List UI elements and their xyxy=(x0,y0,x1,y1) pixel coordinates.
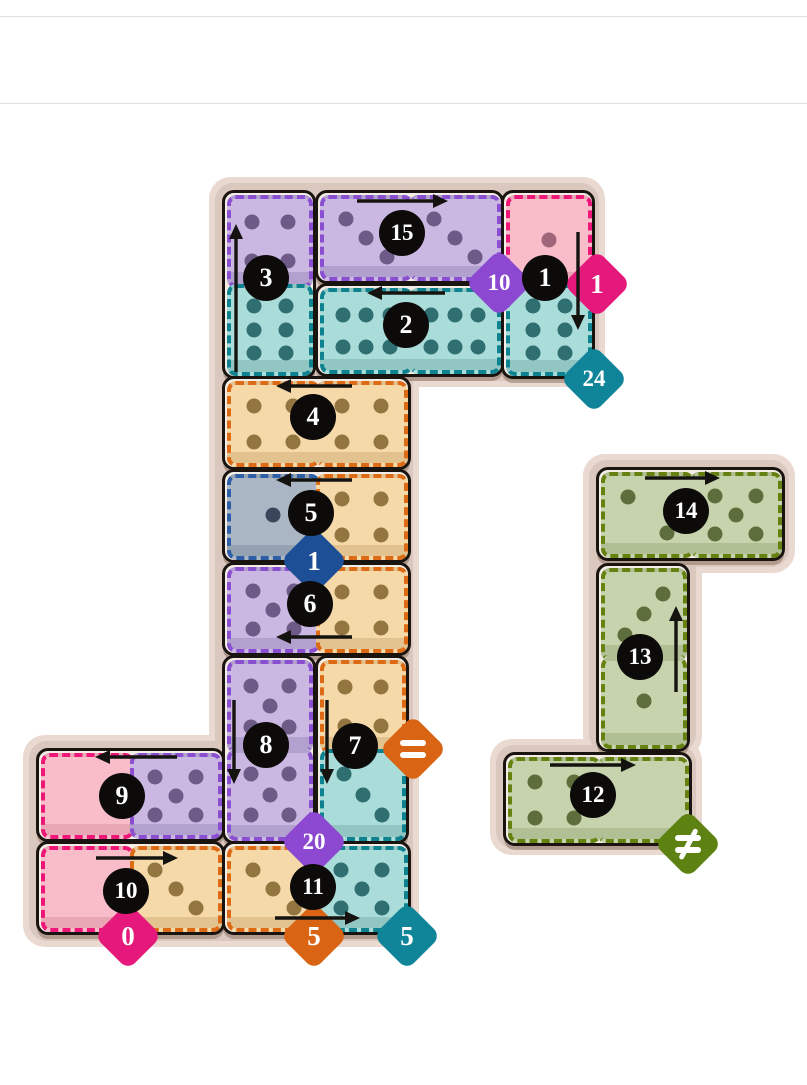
target-badge-neq xyxy=(654,810,722,878)
arrow-right-icon xyxy=(96,849,178,867)
pip xyxy=(266,882,281,897)
equals-bar xyxy=(400,752,426,758)
arrow-down-icon xyxy=(225,700,243,784)
pip xyxy=(337,767,352,782)
pip xyxy=(527,810,542,825)
move-number: 6 xyxy=(287,581,333,627)
pip xyxy=(168,882,183,897)
pip xyxy=(447,339,462,354)
pip xyxy=(245,863,260,878)
arrow-down-icon xyxy=(318,700,336,784)
pip xyxy=(427,212,442,227)
move-number: 9 xyxy=(99,773,145,819)
move-number: 2 xyxy=(383,302,429,348)
pip xyxy=(375,863,390,878)
pip xyxy=(266,508,281,523)
badge-label: 24 xyxy=(570,355,618,403)
move-number: 13 xyxy=(617,634,663,680)
pip xyxy=(359,231,374,246)
pip xyxy=(281,767,296,782)
puzzle-page: 31512456879101110124120055141312 xyxy=(0,0,807,1085)
pip xyxy=(263,699,278,714)
pip xyxy=(266,603,281,618)
pip xyxy=(527,775,542,790)
pip xyxy=(356,787,371,802)
pip xyxy=(471,308,486,323)
pip xyxy=(374,808,389,823)
arrow-right-icon xyxy=(550,756,636,774)
badge-label: 10 xyxy=(475,259,523,307)
pip xyxy=(244,808,259,823)
move-number: 1 xyxy=(522,255,568,301)
pip xyxy=(278,299,293,314)
move-number: 11 xyxy=(290,864,336,910)
pip xyxy=(280,214,295,229)
pip xyxy=(335,585,350,600)
pip xyxy=(749,489,764,504)
pip xyxy=(424,339,439,354)
arrow-left-icon xyxy=(276,377,352,395)
pip xyxy=(148,807,163,822)
pip xyxy=(263,787,278,802)
arrow-left-icon xyxy=(367,284,445,302)
pip xyxy=(374,527,389,542)
move-number: 15 xyxy=(379,210,425,256)
pip xyxy=(244,767,259,782)
pip xyxy=(708,526,723,541)
arrow-left-icon xyxy=(276,628,352,646)
pip xyxy=(245,584,260,599)
pip xyxy=(335,399,350,414)
arrow-left-icon xyxy=(276,471,352,489)
not-equal-slash xyxy=(678,828,698,860)
pip xyxy=(471,339,486,354)
pip xyxy=(655,586,670,601)
move-number: 5 xyxy=(288,490,334,536)
pip xyxy=(335,434,350,449)
arrow-down-icon xyxy=(569,232,587,330)
arrow-right-icon xyxy=(357,192,448,210)
pip xyxy=(335,339,350,354)
target-badge-eq xyxy=(379,715,447,783)
pip xyxy=(335,308,350,323)
pip xyxy=(338,212,353,227)
move-number: 3 xyxy=(243,255,289,301)
pip xyxy=(359,308,374,323)
pip xyxy=(278,322,293,337)
pip xyxy=(285,434,300,449)
pip xyxy=(245,621,260,636)
pip xyxy=(374,492,389,507)
pip xyxy=(335,492,350,507)
badge-label: 0 xyxy=(104,912,152,960)
pip xyxy=(338,679,353,694)
pip xyxy=(189,900,204,915)
pip xyxy=(354,882,369,897)
move-number: 7 xyxy=(332,723,378,769)
pip xyxy=(168,789,183,804)
pip xyxy=(247,346,262,361)
move-number: 4 xyxy=(290,394,336,440)
pip xyxy=(374,434,389,449)
arrow-up-icon xyxy=(667,606,685,692)
move-number: 8 xyxy=(243,722,289,768)
pip xyxy=(247,299,262,314)
pip xyxy=(728,508,743,523)
arrow-right-icon xyxy=(645,469,720,487)
pip xyxy=(373,718,388,733)
pip xyxy=(526,299,541,314)
arrow-up-icon xyxy=(227,224,245,372)
badge-label xyxy=(389,725,437,773)
pip xyxy=(749,526,764,541)
pip xyxy=(374,620,389,635)
pip xyxy=(246,434,261,449)
pip xyxy=(447,308,462,323)
move-number: 14 xyxy=(663,488,709,534)
badge-label: 20 xyxy=(290,818,338,866)
pip xyxy=(189,770,204,785)
arrow-left-icon xyxy=(95,748,177,766)
target-badge-24: 24 xyxy=(560,345,628,413)
pip xyxy=(359,339,374,354)
pip xyxy=(637,694,652,709)
pip xyxy=(281,678,296,693)
pip xyxy=(244,678,259,693)
pip xyxy=(278,346,293,361)
pip xyxy=(526,346,541,361)
equals-bar xyxy=(400,740,426,746)
target-badge-5: 5 xyxy=(373,902,441,970)
pip xyxy=(148,770,163,785)
pip xyxy=(374,399,389,414)
arrow-right-icon xyxy=(275,909,360,927)
pip xyxy=(447,231,462,246)
pip xyxy=(373,679,388,694)
badge-label xyxy=(664,820,712,868)
pip xyxy=(620,490,635,505)
pip xyxy=(246,399,261,414)
pip xyxy=(542,232,557,247)
pip xyxy=(374,585,389,600)
pip xyxy=(708,489,723,504)
pip xyxy=(245,214,260,229)
move-number: 10 xyxy=(103,868,149,914)
move-number: 12 xyxy=(570,772,616,818)
pip xyxy=(526,322,541,337)
badge-label: 1 xyxy=(290,537,338,585)
pip xyxy=(189,807,204,822)
badge-label: 5 xyxy=(383,912,431,960)
pip xyxy=(247,322,262,337)
pip xyxy=(637,607,652,622)
